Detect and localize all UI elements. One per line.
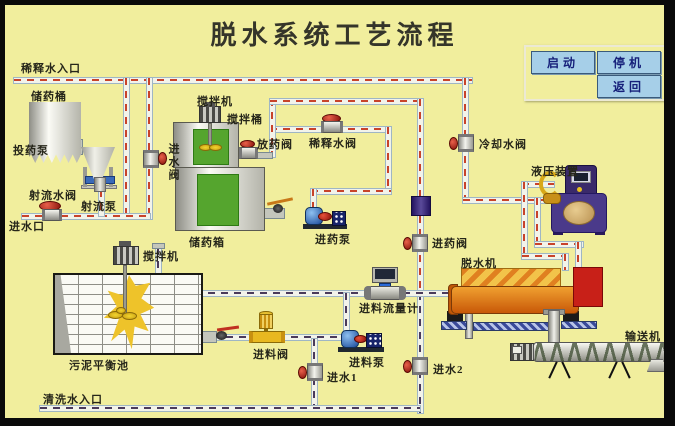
label-dosing-pump: 投药泵	[13, 142, 49, 158]
floor-pad	[561, 321, 597, 329]
label-water-inlet-port: 进水口	[9, 218, 45, 234]
label-feed-pump: 进料泵	[349, 354, 385, 370]
label-water2: 进水2	[433, 361, 464, 377]
dewaterer-drive-box	[573, 267, 603, 307]
jet-pump-neck	[94, 177, 106, 192]
label-feed-flow-meter: 进料流量计	[359, 300, 419, 316]
pipe-mixtank-left-outer	[123, 77, 130, 220]
label-jet-pump: 射流泵	[81, 198, 117, 214]
water2-valve[interactable]	[412, 357, 428, 375]
label-conveyor: 输送机	[625, 328, 661, 344]
feed-valve[interactable]	[249, 331, 285, 343]
label-storage-barrel: 储药桶	[31, 88, 67, 104]
pipe-chem-top-header	[269, 98, 424, 105]
label-dewaterer: 脱水机	[461, 255, 497, 271]
stop-button[interactable]: 停机	[597, 51, 661, 74]
label-inlet-valve: 进水阀	[165, 143, 181, 191]
conveyor-leg	[608, 361, 617, 378]
label-chem-tank: 储药箱	[189, 234, 225, 250]
label-chem-inlet-valve: 进药阀	[432, 235, 468, 251]
label-discharge-valve: 放药阀	[257, 136, 293, 152]
pool-mixer-propeller	[116, 307, 126, 314]
label-hydraulic-unit: 液压装置	[531, 163, 579, 179]
flow-meter-cap	[364, 286, 371, 300]
flow-meter-screen	[375, 269, 395, 279]
inline-mixer-device	[411, 196, 431, 216]
label-pool-mixer: 搅拌机	[143, 248, 179, 264]
cooling-water-valve-actuator	[449, 137, 458, 150]
pipe-main-top-water	[13, 77, 473, 84]
chem-inlet-valve-actuator	[403, 237, 412, 250]
label-jet-water-valve: 射流水阀	[29, 187, 77, 203]
conveyor-leg	[548, 361, 557, 378]
water1-valve-actuator	[298, 366, 307, 379]
feed-valve-actuator	[259, 314, 273, 329]
discharge-valve[interactable]	[239, 147, 258, 159]
label-dilution-inlet: 稀释水入口	[21, 60, 81, 76]
chem-inlet-valve[interactable]	[412, 234, 428, 252]
control-panel: 启动 停机 返回	[524, 45, 666, 101]
chem-pump-badge	[318, 212, 332, 221]
back-button[interactable]: 返回	[597, 75, 661, 98]
hmi-screen: 脱水系统工艺流程 启动 停机 返回	[0, 0, 675, 426]
dilution-valve[interactable]	[321, 121, 343, 133]
pipe-hydraulic-down-2	[534, 197, 541, 247]
label-feed-valve: 进料阀	[253, 346, 289, 362]
conveyor-screw-flights	[535, 343, 667, 361]
start-button[interactable]: 启动	[531, 51, 595, 74]
conveyor-leg	[621, 361, 630, 378]
mixer-propeller	[209, 144, 222, 151]
label-mixer-top: 搅拌机	[197, 93, 233, 109]
jet-water-valve[interactable]	[42, 209, 62, 221]
pipe-feed-pump-riser	[343, 292, 350, 334]
water-inlet-valve[interactable]	[143, 150, 159, 168]
water2-valve-actuator	[403, 360, 412, 373]
chem-pump-control-box	[332, 211, 346, 226]
conveyor-motor-plate	[512, 346, 522, 354]
hydraulic-hose-fitting	[543, 193, 561, 204]
pipe-hydraulic-down-1	[521, 181, 528, 260]
tank-ball-valve[interactable]	[273, 204, 283, 213]
pool-mixer-propeller	[122, 312, 137, 320]
label-chem-pump: 进药泵	[315, 231, 351, 247]
pipe-hydraulic-into-box-1	[562, 253, 569, 271]
label-balance-pool: 污泥平衡池	[69, 357, 129, 373]
pipe-dilution-down	[385, 126, 392, 194]
label-cooling-valve: 冷却水阀	[479, 136, 527, 152]
pool-mixer-motor[interactable]	[113, 246, 139, 265]
pool-mixer-cap	[119, 241, 131, 246]
water1-valve[interactable]	[307, 363, 323, 381]
flow-meter-cap	[399, 286, 406, 300]
floor-pad	[441, 321, 467, 330]
chemical-storage-tank-liquid	[197, 174, 239, 226]
label-wash-inlet: 清洗水入口	[43, 391, 103, 407]
label-mixing-barrel: 搅拌桶	[227, 111, 263, 127]
feed-pump-control-box	[366, 333, 382, 348]
conveyor-leg	[561, 361, 570, 378]
pipe-chem-pump-discharge	[310, 188, 392, 195]
pipe-inlet-valve-riser	[146, 77, 153, 220]
floor-pad	[473, 322, 559, 331]
hydraulic-oval-plate	[563, 201, 595, 225]
pool-ball-valve[interactable]	[216, 331, 227, 340]
label-dilution-valve: 稀释水阀	[309, 135, 357, 151]
label-water1: 进水1	[327, 369, 358, 385]
cooling-water-valve[interactable]	[458, 134, 474, 152]
discharge-tube	[548, 310, 560, 346]
hydraulic-indicator	[577, 187, 582, 192]
